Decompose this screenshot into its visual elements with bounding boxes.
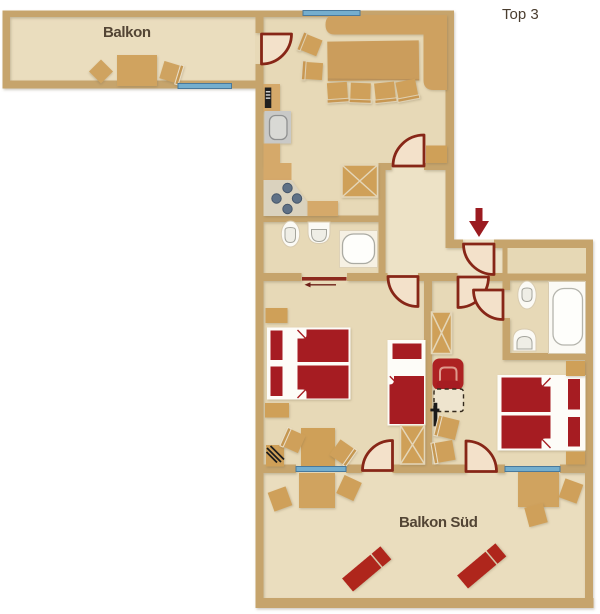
svg-text:Top 3: Top 3 xyxy=(502,6,539,23)
svg-text:Balkon: Balkon xyxy=(103,24,151,41)
svg-text:Balkon Süd: Balkon Süd xyxy=(399,514,478,531)
